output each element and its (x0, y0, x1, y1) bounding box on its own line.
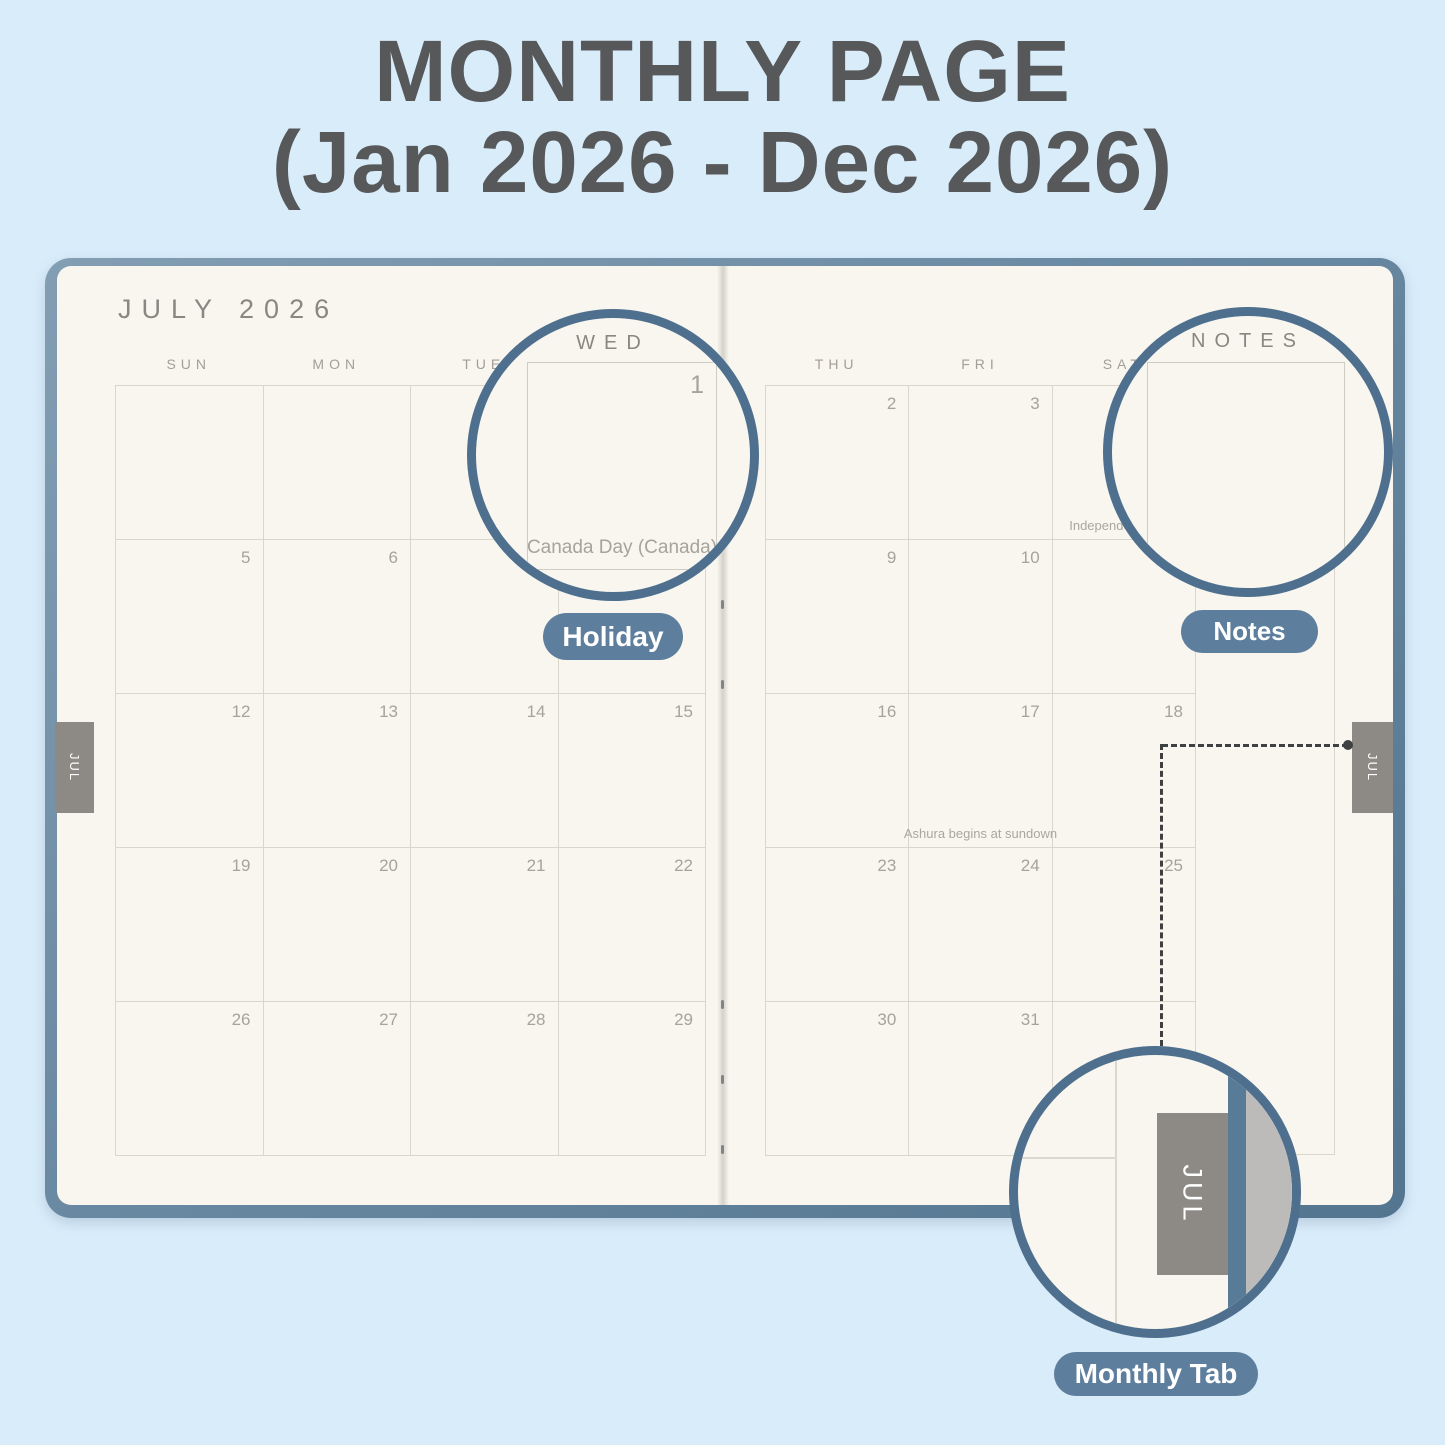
date-number: 25 (1164, 856, 1183, 876)
monthly-tab-right-label: JUL (1365, 753, 1380, 782)
date-number: 29 (674, 1010, 693, 1030)
day-cell-27: 27 (264, 1002, 412, 1156)
date-number: 15 (674, 702, 693, 722)
holiday-label: Ashura begins at sundown (889, 826, 1071, 841)
day-cell-9: 9 (766, 540, 909, 694)
notes-badge: Notes (1181, 610, 1318, 653)
date-number: 17 (1021, 702, 1040, 722)
day-cell-3: 3 (909, 386, 1052, 540)
day-cell-23: 23 (766, 848, 909, 1002)
day-cell-17: 17Ashura begins at sundown (909, 694, 1052, 848)
day-cell-6: 6 (264, 540, 412, 694)
day-cell-15: 15 (559, 694, 707, 848)
date-number: 22 (674, 856, 693, 876)
spine-stitch (721, 1145, 724, 1154)
callout-dashed-line-horizontal (1162, 744, 1348, 747)
date-number: 13 (379, 702, 398, 722)
magnified-notes-header: NOTES (1112, 330, 1384, 353)
spine-stitch (721, 680, 724, 689)
day-cell-16: 16 (766, 694, 909, 848)
date-number: 31 (1021, 1010, 1040, 1030)
date-number: 20 (379, 856, 398, 876)
monthly-tab-badge: Monthly Tab (1054, 1352, 1258, 1396)
magnified-cover-edge (1228, 1055, 1246, 1329)
day-cell-13: 13 (264, 694, 412, 848)
date-number: 5 (241, 548, 250, 568)
callout-dashed-line-vertical (1160, 744, 1163, 1046)
monthly-tab-right: JUL (1352, 722, 1393, 813)
date-number: 19 (232, 856, 251, 876)
monthly-tab-left: JUL (55, 722, 94, 813)
date-number: 23 (877, 856, 896, 876)
magnified-grid-line (1018, 1157, 1115, 1159)
day-cell-10: 10 (909, 540, 1052, 694)
day-cell-28: 28 (411, 1002, 559, 1156)
headline-line2: (Jan 2026 - Dec 2026) (0, 117, 1445, 208)
spine-stitch (721, 1075, 724, 1084)
day-cell-26: 26 (116, 1002, 264, 1156)
day-header-thu: THU (765, 356, 908, 372)
magnified-page-stack (1246, 1055, 1292, 1329)
magnified-notes-box (1147, 362, 1345, 597)
day-cell-14: 14 (411, 694, 559, 848)
day-cell-21: 21 (411, 848, 559, 1002)
day-cell-18: 18 (1053, 694, 1196, 848)
monthly-tab-left-label: JUL (67, 753, 82, 782)
magnified-wed-header: WED (476, 332, 750, 355)
date-number: 12 (232, 702, 251, 722)
magnifier-holiday: WED 1 Canada Day (Canada) (467, 309, 759, 601)
spine-stitch (721, 600, 724, 609)
magnified-monthly-tab-label: JUL (1177, 1164, 1208, 1224)
day-cell-19: 19 (116, 848, 264, 1002)
date-number: 10 (1021, 548, 1040, 568)
date-number: 27 (379, 1010, 398, 1030)
month-title: JULY 2026 (118, 294, 339, 325)
magnified-monthly-tab: JUL (1157, 1113, 1228, 1275)
date-number: 9 (887, 548, 896, 568)
day-cell-25: 25 (1053, 848, 1196, 1002)
date-number: 14 (527, 702, 546, 722)
day-header-mon: MON (263, 356, 411, 372)
date-number: 26 (232, 1010, 251, 1030)
date-number: 6 (389, 548, 398, 568)
date-number: 3 (1030, 394, 1039, 414)
date-number: 28 (527, 1010, 546, 1030)
day-cell-5: 5 (116, 540, 264, 694)
headline: MONTHLY PAGE (Jan 2026 - Dec 2026) (0, 26, 1445, 209)
date-number: 24 (1021, 856, 1040, 876)
day-cell-24: 24 (909, 848, 1052, 1002)
day-cell-empty (116, 386, 264, 540)
magnified-holiday-text: Canada Day (Canada) (498, 537, 746, 559)
magnified-day-cell: 1 Canada Day (Canada) (527, 362, 717, 570)
magnifier-monthly-tab: JUL (1009, 1046, 1301, 1338)
magnified-grid-line (1115, 1055, 1117, 1329)
holiday-badge: Holiday (543, 613, 683, 660)
day-header-fri: FRI (908, 356, 1051, 372)
magnified-date-number: 1 (690, 371, 704, 400)
day-header-sun: SUN (115, 356, 263, 372)
magnifier-notes: NOTES (1103, 307, 1393, 597)
day-cell-22: 22 (559, 848, 707, 1002)
date-number: 21 (527, 856, 546, 876)
date-number: 2 (887, 394, 896, 414)
day-cell-12: 12 (116, 694, 264, 848)
product-feature-image: MONTHLY PAGE (Jan 2026 - Dec 2026) JULY … (0, 0, 1445, 1445)
date-number: 18 (1164, 702, 1183, 722)
day-cell-30: 30 (766, 1002, 909, 1156)
headline-line1: MONTHLY PAGE (0, 26, 1445, 117)
day-cell-29: 29 (559, 1002, 707, 1156)
day-cell-2: 2 (766, 386, 909, 540)
date-number: 30 (877, 1010, 896, 1030)
callout-dot (1343, 740, 1353, 750)
day-cell-empty (264, 386, 412, 540)
spine-stitch (721, 1000, 724, 1009)
day-cell-20: 20 (264, 848, 412, 1002)
date-number: 16 (877, 702, 896, 722)
